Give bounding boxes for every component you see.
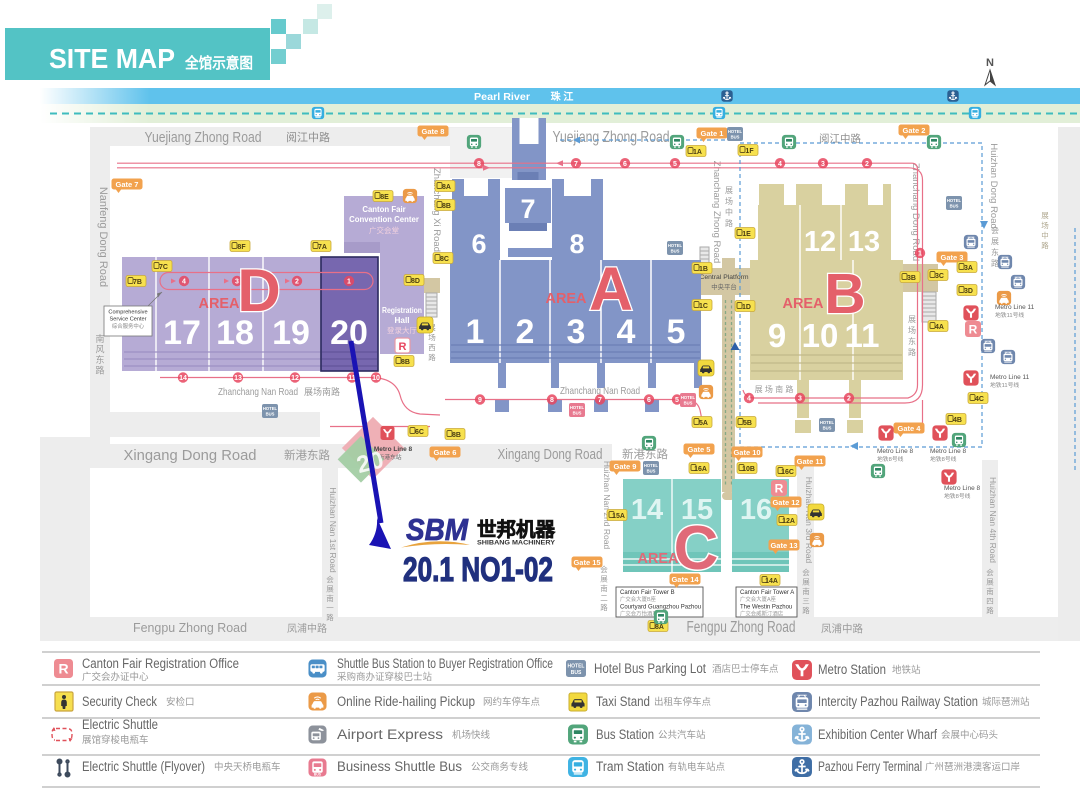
svg-text:地铁站: 地铁站 [892,664,921,676]
svg-text:6: 6 [471,229,486,259]
svg-text:东: 东 [908,336,916,346]
svg-text:The Westin Pazhou: The Westin Pazhou [740,605,792,611]
svg-text:6: 6 [623,161,627,168]
svg-text:Gate 10: Gate 10 [733,448,760,457]
svg-text:城际琶洲站: 城际琶洲站 [982,696,1030,708]
svg-text:HOTEL: HOTEL [668,243,683,248]
svg-text:展: 展 [725,186,733,195]
svg-text:地铁11号线: 地铁11号线 [990,381,1019,389]
svg-text:Metro Line 11: Metro Line 11 [995,304,1035,311]
svg-text:展: 展 [802,578,810,587]
svg-text:Gate 9: Gate 9 [614,462,637,471]
svg-text:中央平台: 中央平台 [711,282,737,291]
svg-text:广交会堂: 广交会堂 [369,225,399,235]
svg-text:2: 2 [865,161,869,168]
svg-text:10: 10 [372,375,380,382]
svg-text:HOTEL: HOTEL [568,664,585,670]
svg-text:世邦机器: 世邦机器 [477,518,555,541]
svg-text:8: 8 [550,397,554,404]
svg-text:8: 8 [569,229,584,259]
svg-text:16C: 16C [781,469,794,476]
svg-text:11: 11 [845,317,880,354]
svg-text:BUS: BUS [671,249,680,254]
svg-text:阅江中路: 阅江中路 [286,131,330,144]
svg-text:1A: 1A [693,149,702,156]
svg-text:Xingang Dong Road: Xingang Dong Road [124,447,257,464]
svg-text:Huizhan Nan 1st Road: Huizhan Nan 1st Road [328,487,338,573]
svg-text:会展中心码头: 会展中心码头 [941,729,998,741]
svg-text:东: 东 [95,354,104,365]
svg-text:展馆穿梭电瓶车: 展馆穿梭电瓶车 [82,734,149,746]
svg-text:18: 18 [216,314,254,352]
svg-text:Metro Line 8: Metro Line 8 [930,448,967,455]
svg-text:7: 7 [520,194,535,224]
svg-text:南: 南 [802,586,810,596]
svg-text:17: 17 [163,314,201,352]
svg-text:8A: 8A [655,624,664,631]
svg-text:西: 西 [428,343,436,352]
svg-text:Huizhan Nan 2nd Road: Huizhan Nan 2nd Road [602,461,612,550]
svg-text:展 场 南 路: 展 场 南 路 [755,384,794,394]
svg-text:中央天桥电瓶车: 中央天桥电瓶车 [214,761,281,773]
svg-text:Courtyard Guangzhou Pazhou: Courtyard Guangzhou Pazhou [620,605,701,611]
svg-text:HOTEL: HOTEL [263,406,278,411]
svg-text:N: N [986,57,994,69]
svg-text:R: R [969,323,978,337]
svg-text:Metro Line 8: Metro Line 8 [877,448,914,455]
svg-text:Zhanchang Zhong Road: Zhanchang Zhong Road [711,161,722,263]
svg-text:展: 展 [908,315,916,324]
svg-text:展: 展 [326,585,334,594]
svg-text:风: 风 [95,345,104,355]
svg-text:16A: 16A [694,466,707,473]
svg-text:路: 路 [986,605,994,615]
svg-text:Metro Line 8: Metro Line 8 [944,485,981,492]
svg-text:2: 2 [516,313,535,351]
svg-text:7: 7 [574,161,578,168]
svg-text:网约车停车点: 网约车停车点 [483,696,541,708]
svg-text:HOTEL: HOTEL [947,198,962,203]
svg-text:路: 路 [600,602,608,612]
svg-text:南: 南 [600,583,608,593]
svg-text:地铁11号线: 地铁11号线 [995,311,1024,319]
svg-text:路: 路 [908,347,916,357]
svg-text:8B: 8B [452,432,461,439]
svg-text:R: R [58,661,68,677]
svg-text:会: 会 [991,225,999,235]
svg-text:Xingang Dong Road: Xingang Dong Road [498,446,603,463]
svg-text:公交商务专线: 公交商务专线 [471,761,529,773]
svg-text:8: 8 [477,161,481,168]
svg-text:7C: 7C [159,264,168,271]
svg-text:广交会办证中心: 广交会办证中心 [82,671,149,683]
svg-text:15A: 15A [612,513,625,520]
svg-text:新港东路: 新港东路 [284,448,330,462]
svg-text:9: 9 [768,317,786,354]
svg-text:8C: 8C [440,256,449,263]
svg-text:7B: 7B [133,279,142,286]
svg-text:8B: 8B [401,359,410,366]
svg-text:Fengpu Zhong Road: Fengpu Zhong Road [687,619,796,636]
svg-text:酒店巴士停车点: 酒店巴士停车点 [712,663,779,675]
svg-text:凤浦中路: 凤浦中路 [821,622,863,635]
svg-text:16: 16 [740,494,772,526]
svg-text:12: 12 [291,375,299,382]
svg-text:3C: 3C [935,273,944,280]
svg-text:Gate 5: Gate 5 [688,445,711,454]
svg-text:Gate 15: Gate 15 [573,558,600,567]
svg-text:4C: 4C [975,396,984,403]
svg-text:8D: 8D [411,278,420,285]
svg-text:场: 场 [1041,221,1049,230]
svg-text:Pazhou Ferry Terminal: Pazhou Ferry Terminal [818,759,922,774]
svg-text:5B: 5B [743,420,752,427]
svg-text:珠 江: 珠 江 [551,90,574,103]
svg-text:9: 9 [478,397,482,404]
svg-text:Gate 14: Gate 14 [671,575,699,584]
svg-text:HOTEL: HOTEL [644,463,659,468]
svg-text:四: 四 [986,597,994,606]
svg-text:路: 路 [428,352,436,362]
svg-text:C: C [674,514,719,583]
svg-text:路: 路 [1041,240,1049,250]
svg-text:Convention Center: Convention Center [349,215,419,224]
svg-text:展场南路: 展场南路 [304,386,340,397]
svg-text:4: 4 [778,161,782,168]
svg-text:有轨电车站点: 有轨电车站点 [668,761,726,773]
svg-text:HOTEL: HOTEL [728,129,743,134]
svg-text:7A: 7A [318,244,327,251]
svg-text:Shuttle Bus Station to Buyer R: Shuttle Bus Station to Buyer Registratio… [337,656,553,671]
svg-text:南: 南 [95,333,104,344]
svg-text:AREA: AREA [199,296,241,312]
svg-text:BUS: BUS [571,670,582,676]
svg-text:会: 会 [986,567,994,577]
svg-text:2: 2 [295,279,299,286]
svg-text:Zhanchang Dong Road: Zhanchang Dong Road [910,163,921,261]
svg-text:地铁8号线: 地铁8号线 [930,455,957,463]
svg-text:BUS: BUS [573,411,582,416]
svg-text:1B: 1B [699,266,708,273]
svg-text:南: 南 [986,586,994,596]
svg-text:4: 4 [617,313,636,351]
svg-text:展: 展 [986,578,994,587]
svg-text:13: 13 [234,375,242,382]
svg-text:14: 14 [179,375,187,382]
svg-text:3A: 3A [964,265,973,272]
svg-text:Gate 12: Gate 12 [772,498,799,507]
svg-text:3: 3 [798,396,802,403]
svg-text:12: 12 [804,226,836,258]
svg-text:1C: 1C [699,303,708,310]
svg-text:路: 路 [326,612,334,622]
svg-text:Zhanchang Nan Road: Zhanchang Nan Road [218,386,298,398]
svg-text:HOTEL: HOTEL [820,420,835,425]
svg-text:4A: 4A [935,324,944,331]
svg-text:Pearl River: Pearl River [474,91,530,103]
svg-text:场: 场 [908,326,916,335]
svg-text:SITE MAP: SITE MAP [49,43,175,74]
svg-text:14A: 14A [765,578,778,585]
svg-text:5: 5 [673,161,677,168]
svg-text:Canton Fair Tower A: Canton Fair Tower A [740,590,794,596]
svg-text:AREA: AREA [783,296,825,312]
svg-text:Hotel Bus Parking Lot: Hotel Bus Parking Lot [594,661,706,676]
svg-text:19: 19 [272,314,310,352]
svg-text:1: 1 [347,279,351,286]
svg-text:Exhibition Center Wharf: Exhibition Center Wharf [818,727,937,742]
svg-text:Gate 13: Gate 13 [770,541,797,550]
svg-text:展: 展 [991,237,999,246]
svg-text:10: 10 [802,317,839,354]
svg-text:20.1 NO1-02: 20.1 NO1-02 [403,551,553,589]
svg-text:Huizhan Dong Road: Huizhan Dong Road [988,143,999,229]
svg-text:4: 4 [182,279,186,286]
svg-text:Electric Shuttle (Flyover): Electric Shuttle (Flyover) [82,759,205,774]
svg-text:地铁8号线: 地铁8号线 [944,492,971,500]
svg-text:BUS: BUS [266,412,275,417]
svg-text:AREA: AREA [546,291,588,307]
svg-text:安检口: 安检口 [166,696,195,708]
svg-text:4B: 4B [953,417,962,424]
svg-text:Taxi Stand: Taxi Stand [596,694,650,709]
svg-text:Gate 11: Gate 11 [797,457,824,466]
svg-text:南: 南 [326,593,334,603]
svg-text:Online Ride-hailing Pickup: Online Ride-hailing Pickup [337,694,475,709]
svg-text:一: 一 [326,604,334,613]
svg-text:BUS: BUS [684,401,693,406]
svg-text:登录大厅: 登录大厅 [387,325,417,335]
svg-text:12A: 12A [782,518,795,525]
svg-text:Canton Fair Tower B: Canton Fair Tower B [620,590,675,596]
svg-text:13: 13 [848,226,880,258]
svg-text:Registration: Registration [382,306,422,315]
svg-text:Gate 2: Gate 2 [903,126,926,135]
svg-text:二: 二 [600,594,608,603]
svg-text:Electric Shuttle: Electric Shuttle [82,717,158,732]
svg-text:BUS: BUS [823,426,832,431]
svg-text:Central Platform: Central Platform [699,274,748,281]
svg-text:R: R [775,482,784,496]
svg-text:5A: 5A [699,420,708,427]
svg-text:BUS: BUS [731,135,740,140]
svg-text:Metro Line 11: Metro Line 11 [990,374,1030,381]
svg-text:Yuejiang Zhong Road: Yuejiang Zhong Road [145,129,262,146]
svg-text:Tram Station: Tram Station [596,759,664,774]
svg-text:Gate 7: Gate 7 [116,180,139,189]
svg-text:Service Center: Service Center [110,317,147,323]
svg-text:2: 2 [847,396,851,403]
svg-text:三: 三 [802,597,810,606]
svg-text:全馆示意图: 全馆示意图 [184,54,253,72]
svg-text:地铁8号线: 地铁8号线 [877,455,904,463]
svg-text:20: 20 [330,314,368,352]
svg-text:Gate 3: Gate 3 [941,253,964,262]
svg-text:7: 7 [598,397,602,404]
svg-text:机场快线: 机场快线 [452,729,491,741]
svg-text:展: 展 [1041,211,1049,220]
svg-text:Airport Express: Airport Express [337,727,443,742]
svg-text:3B: 3B [907,275,916,282]
svg-text:Yuejiang Zhong Road: Yuejiang Zhong Road [553,129,670,146]
svg-text:HOTEL: HOTEL [570,405,585,410]
svg-text:BUS: BUS [950,204,959,209]
svg-text:Gate 6: Gate 6 [434,448,457,457]
svg-text:3: 3 [821,161,825,168]
svg-text:1E: 1E [742,231,751,238]
svg-text:Hall: Hall [394,316,409,325]
svg-text:14: 14 [631,494,663,526]
svg-text:R: R [399,341,407,353]
svg-text:1: 1 [918,251,922,258]
svg-text:广交会大厦B座: 广交会大厦B座 [620,595,657,603]
svg-text:Canton Fair Registration Offic: Canton Fair Registration Office [82,656,239,671]
svg-text:出租车停车点: 出租车停车点 [654,696,712,708]
svg-text:5: 5 [675,397,679,404]
svg-text:Comprehensive: Comprehensive [108,310,147,316]
svg-text:BUS: BUS [647,469,656,474]
svg-text:8B: 8B [442,203,451,210]
svg-text:凤浦中路: 凤浦中路 [287,622,327,635]
svg-text:3D: 3D [964,288,973,295]
svg-text:Gate 1: Gate 1 [701,129,724,138]
svg-text:1F: 1F [745,148,754,155]
svg-text:Business Shuttle Bus: Business Shuttle Bus [337,759,462,774]
svg-text:8E: 8E [380,194,389,201]
svg-text:Huizhan Nan 4th Road: Huizhan Nan 4th Road [988,477,998,563]
svg-text:中: 中 [725,207,733,217]
svg-text:1: 1 [466,313,485,351]
svg-text:场: 场 [725,197,733,206]
svg-text:Fengpu Zhong Road: Fengpu Zhong Road [133,620,247,635]
svg-text:广交会万怡酒店: 广交会万怡酒店 [620,610,658,618]
svg-text:3: 3 [567,313,586,351]
svg-text:广州琶洲港澳客运口岸: 广州琶洲港澳客运口岸 [925,761,1021,773]
svg-text:路: 路 [95,365,104,376]
svg-text:Bus Station: Bus Station [596,727,654,742]
svg-text:Security Check: Security Check [82,694,157,709]
svg-text:Canton Fair: Canton Fair [362,205,405,214]
svg-text:路: 路 [725,218,733,228]
svg-text:6C: 6C [415,429,424,436]
svg-text:会: 会 [802,567,810,577]
svg-text:路: 路 [991,258,999,268]
svg-text:Gate 4: Gate 4 [898,424,922,433]
svg-text:路: 路 [802,605,810,615]
svg-text:Nanfeng Dong Road: Nanfeng Dong Road [97,187,109,287]
svg-text:6: 6 [647,397,651,404]
svg-text:Intercity Pazhou Railway Stati: Intercity Pazhou Railway Station [818,694,978,709]
svg-text:中: 中 [1041,230,1049,240]
svg-text:5: 5 [667,313,686,351]
svg-text:会: 会 [326,574,334,584]
svg-text:SHIBANG MACHINERY: SHIBANG MACHINERY [477,540,556,547]
svg-text:Gate 8: Gate 8 [422,127,445,136]
svg-text:Metro Station: Metro Station [818,662,886,677]
svg-text:场: 场 [428,333,436,342]
svg-text:采购商办证穿梭巴士站: 采购商办证穿梭巴士站 [337,671,433,683]
svg-text:展: 展 [600,575,608,584]
svg-text:1D: 1D [742,304,751,311]
svg-text:10B: 10B [742,466,755,473]
svg-text:公共汽车站: 公共汽车站 [658,729,706,741]
svg-text:4: 4 [747,396,751,403]
svg-text:8F: 8F [237,244,246,251]
svg-text:广交会威斯汀酒店: 广交会威斯汀酒店 [740,610,784,618]
svg-text:东: 东 [991,247,999,257]
svg-text:8A: 8A [442,184,451,191]
svg-text:HOTEL: HOTEL [681,395,696,400]
svg-text:广交会大厦A座: 广交会大厦A座 [740,595,777,603]
svg-text:综合服务中心: 综合服务中心 [112,322,145,330]
